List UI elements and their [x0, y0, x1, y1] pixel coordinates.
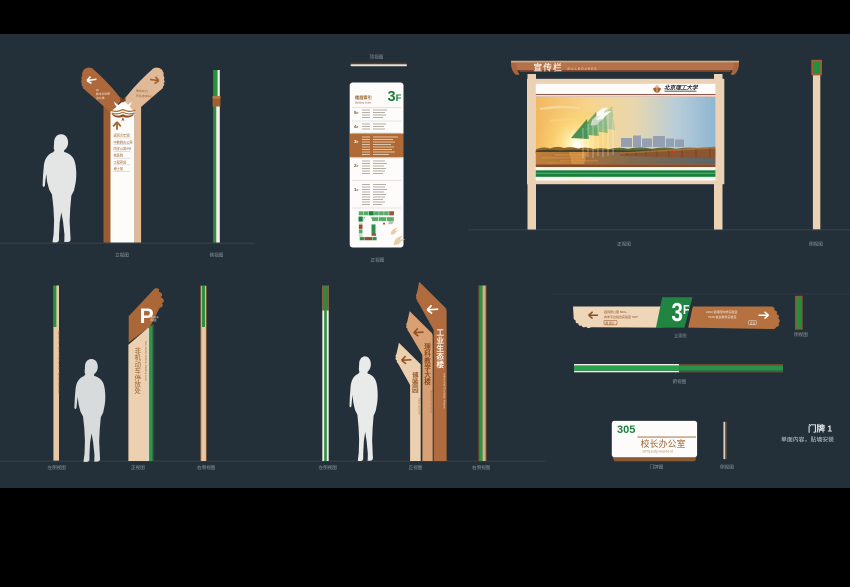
- svg-text:返回青年湖: 返回青年湖: [114, 133, 130, 138]
- svg-text:机: 机: [135, 353, 142, 362]
- svg-text:3F: 3F: [354, 139, 359, 144]
- svg-text:侧视图: 侧视图: [794, 331, 808, 338]
- svg-text:305: 305: [617, 424, 635, 436]
- svg-text:Building Index: Building Index: [355, 101, 372, 105]
- svg-text:单面内容，贴墙安装: 单面内容，贴墙安装: [781, 435, 834, 443]
- svg-text:放: 放: [135, 380, 142, 389]
- svg-text:2203 招待所向学实验室: 2203 招待所向学实验室: [706, 309, 738, 314]
- svg-text:北京理工大学: 北京理工大学: [664, 85, 699, 92]
- svg-text:侧视图: 侧视图: [809, 241, 823, 248]
- svg-text:正视图: 正视图: [371, 257, 385, 264]
- svg-text:正视图: 正视图: [131, 464, 145, 471]
- svg-text:Boya garden: Boya garden: [417, 398, 420, 415]
- svg-text:5F: 5F: [354, 110, 359, 115]
- svg-text:立面图: 立面图: [674, 332, 687, 339]
- svg-text:向学平台综合实验室 700*: 向学平台综合实验室 700*: [604, 314, 639, 319]
- svg-text:1F: 1F: [354, 187, 359, 192]
- svg-text:立视图: 立视图: [115, 252, 129, 259]
- svg-text:BEIJING INSTITUTE OF TECHNOLOG: BEIJING INSTITUTE OF TECHNOLOGY: [57, 331, 61, 395]
- svg-text:楼: 楼: [436, 359, 444, 369]
- svg-text:会议: 会议: [750, 321, 756, 325]
- svg-text:教学4F口: 教学4F口: [136, 89, 148, 94]
- svg-text:工程养成: 工程养成: [114, 159, 128, 164]
- svg-text:侧视图: 侧视图: [720, 464, 734, 471]
- svg-text:宣传栏: 宣传栏: [534, 62, 563, 73]
- svg-text:右侧视图: 右侧视图: [472, 464, 491, 471]
- svg-text:门牌图: 门牌图: [650, 464, 664, 471]
- svg-text:正视图: 正视图: [409, 464, 423, 471]
- svg-text:理: 理: [424, 342, 431, 351]
- svg-text:园: 园: [412, 385, 419, 394]
- svg-text:学: 学: [424, 363, 431, 372]
- svg-text:非: 非: [135, 346, 142, 355]
- svg-text:处: 处: [135, 386, 142, 395]
- svg-text:校长办公室: 校长办公室: [641, 438, 686, 449]
- svg-text:招待所公寓 500L...: 招待所公寓 500L...: [604, 309, 629, 314]
- svg-text:右侧视图: 右侧视图: [197, 464, 216, 471]
- svg-text:侧视图: 侧视图: [210, 252, 224, 259]
- svg-text:F: F: [683, 302, 690, 317]
- svg-text:正视图: 正视图: [617, 241, 631, 248]
- svg-text:门牌 1: 门牌 1: [808, 424, 832, 434]
- svg-text:4F: 4F: [354, 124, 359, 129]
- svg-text:办公楼: 办公楼: [96, 96, 105, 100]
- svg-text:2F: 2F: [354, 163, 359, 168]
- svg-text:左侧视图: 左侧视图: [48, 464, 67, 471]
- svg-text:3: 3: [671, 298, 683, 327]
- svg-text:停: 停: [135, 373, 142, 382]
- svg-text:俯视图: 俯视图: [673, 378, 687, 385]
- svg-text:楼层索引: 楼层索引: [355, 94, 372, 101]
- svg-text:博: 博: [412, 371, 419, 380]
- svg-text:顶视图: 顶视图: [370, 54, 384, 61]
- svg-text:Non-Motor Vehicle Parking Area: Non-Motor Vehicle Parking Area: [144, 341, 147, 381]
- svg-text:楼: 楼: [424, 377, 431, 386]
- svg-text:7028 信息教科实验室: 7028 信息教科实验室: [708, 314, 737, 319]
- svg-text:BILLBOARDS: BILLBOARDS: [568, 67, 598, 71]
- svg-text:图 会议: 图 会议: [606, 321, 615, 325]
- svg-text:中韩韩古公寓: 中韩韩古公寓: [114, 139, 133, 144]
- svg-text:左侧视图: 左侧视图: [319, 464, 338, 471]
- svg-text:教: 教: [423, 356, 431, 365]
- svg-text:校医院: 校医院: [114, 153, 124, 158]
- svg-text:同学公寓9号: 同学公寓9号: [114, 146, 132, 151]
- svg-text:大: 大: [424, 370, 431, 379]
- svg-text:Officeofpresident: Officeofpresident: [643, 449, 674, 453]
- svg-text:Industrial Ecology House: Industrial Ecology House: [443, 373, 447, 409]
- svg-text:车: 车: [135, 366, 142, 375]
- svg-text:likejiaoxuedaloou: likejiaoxuedaloou: [430, 390, 433, 414]
- svg-text:科: 科: [424, 349, 431, 358]
- svg-text:博士苑: 博士苑: [114, 166, 124, 171]
- svg-text:雅: 雅: [411, 378, 419, 387]
